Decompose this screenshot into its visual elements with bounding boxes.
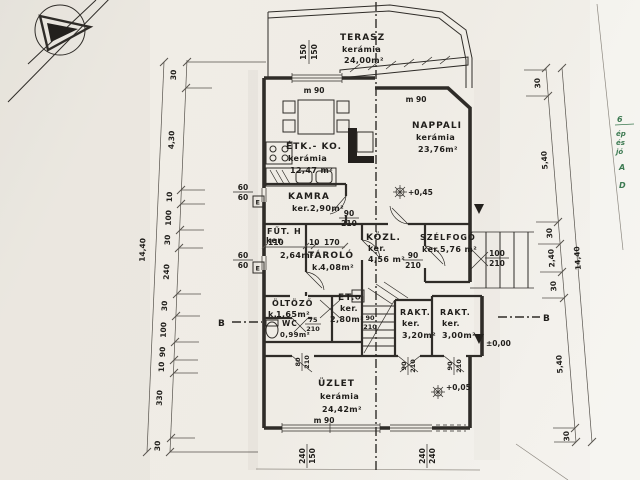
svg-text:6: 6 xyxy=(617,115,623,124)
svg-text:2,80m²: 2,80m² xyxy=(330,315,364,324)
scan-artifacts xyxy=(0,0,640,480)
svg-text:kerámia: kerámia xyxy=(342,45,381,54)
dim-left-2: 10 xyxy=(165,192,174,203)
svg-text:4,56 m²: 4,56 m² xyxy=(368,255,405,264)
svg-text:90: 90 xyxy=(446,361,454,371)
svg-text:210: 210 xyxy=(409,359,417,373)
svg-text:210: 210 xyxy=(306,325,320,333)
dim-oltozo-door: 80 210 xyxy=(294,353,311,371)
svg-text:24,42m²: 24,42m² xyxy=(322,405,362,414)
svg-text:RAKT.: RAKT. xyxy=(440,308,471,317)
room-label-etk-ko: ÉTK.- KO. kerámia 12,47 m² xyxy=(286,140,342,175)
svg-text:150: 150 xyxy=(299,44,308,60)
svg-text:FŰT. H: FŰT. H xyxy=(267,226,302,236)
svg-text:ET.: ET. xyxy=(338,293,355,303)
dim-left-3: 100 xyxy=(164,210,174,226)
room-label-rakt1: RAKT. ker. 3,20m² xyxy=(400,308,436,340)
svg-text:60: 60 xyxy=(238,261,248,270)
dim-left-9: 10 xyxy=(157,362,166,373)
svg-text:60: 60 xyxy=(238,251,248,260)
svg-text:ker.: ker. xyxy=(292,204,310,213)
dim-tarolo-width: 170 xyxy=(324,238,340,247)
svg-text:ÉTK.- KO.: ÉTK.- KO. xyxy=(286,140,342,152)
svg-text:240: 240 xyxy=(298,448,307,464)
room-label-uzlet: ÜZLET kerámia 24,42m² xyxy=(318,378,362,414)
dim-kozl-door: 90 210 xyxy=(403,251,423,270)
boiler-label: O xyxy=(355,294,361,302)
dim-left-6: 30 xyxy=(160,301,169,312)
svg-text:ÖLTÖZŐ: ÖLTÖZŐ xyxy=(272,298,313,308)
svg-text:jó: jó xyxy=(615,148,623,156)
svg-text:80: 80 xyxy=(294,357,302,367)
dim-left-5: 240 xyxy=(162,264,172,280)
svg-text:ép: ép xyxy=(616,130,626,138)
dim-szelfogo-door: 100 210 xyxy=(485,249,509,268)
svg-text:kerámia: kerámia xyxy=(416,133,455,142)
svg-text:2,90m²: 2,90m² xyxy=(310,204,344,213)
m90-bottom: m 90 xyxy=(314,416,335,425)
elevation-nappali: +0,45 xyxy=(408,188,433,197)
svg-text:A: A xyxy=(618,163,625,172)
svg-text:ker.: ker. xyxy=(368,244,386,253)
svg-text:kerámia: kerámia xyxy=(288,154,327,163)
floor-plan-drawing: 30 4,30 10 100 30 240 30 100 90 10 330 3… xyxy=(0,0,640,480)
room-label-tarolo: TÁROLÓ k. 4,08m² xyxy=(308,249,354,272)
svg-text:90: 90 xyxy=(408,251,418,260)
room-label-nappali: NAPPALI kerámia 23,76m² xyxy=(412,121,462,154)
electric-box-label-1: E xyxy=(256,199,260,207)
svg-text:4,08m²: 4,08m² xyxy=(320,263,354,272)
dim-right-2: 30 xyxy=(545,228,555,239)
dim-left-10: 330 xyxy=(155,390,165,406)
svg-text:23,76m²: 23,76m² xyxy=(418,145,458,154)
dim-bottom-door: 240 240 xyxy=(418,444,437,468)
svg-text:kerámia: kerámia xyxy=(320,392,359,401)
svg-text:60: 60 xyxy=(238,183,248,192)
svg-text:5,76 m²: 5,76 m² xyxy=(440,245,477,254)
dim-left-0: 30 xyxy=(169,70,178,81)
svg-text:ÜZLET: ÜZLET xyxy=(318,378,355,389)
dim-right-total: 14,40 xyxy=(572,246,583,270)
svg-text:ker.: ker. xyxy=(442,319,460,328)
elevation-rakt: ±0,00 xyxy=(486,339,511,348)
svg-text:210: 210 xyxy=(405,261,421,270)
section-marker-left: B xyxy=(218,319,226,329)
svg-text:NAPPALI: NAPPALI xyxy=(412,121,462,131)
dim-wall-10: 10 xyxy=(309,238,319,247)
svg-text:ker.: ker. xyxy=(340,304,358,313)
dim-fut-width: 110 xyxy=(268,238,284,247)
svg-text:240: 240 xyxy=(418,448,427,464)
wc-toilet xyxy=(266,320,278,338)
svg-text:60: 60 xyxy=(238,193,248,202)
dim-left-4: 30 xyxy=(163,235,172,246)
dining-table-and-chairs xyxy=(283,100,349,134)
room-label-rakt2: RAKT. ker. 3,00m² xyxy=(440,308,476,340)
dim-left-7: 100 xyxy=(159,322,169,338)
svg-text:210: 210 xyxy=(455,359,463,373)
svg-text:75: 75 xyxy=(308,316,318,324)
svg-text:24,00m²: 24,00m² xyxy=(344,56,384,65)
elevation-uzlet: +0,05 xyxy=(446,383,471,392)
dim-right-0: 30 xyxy=(533,78,543,89)
dim-right-3: 2,40 xyxy=(546,249,556,268)
m90-top: m 90 xyxy=(304,86,325,95)
m90-terrace: m 90 xyxy=(406,95,427,104)
svg-text:SZÉLFOGÓ: SZÉLFOGÓ xyxy=(420,231,476,242)
room-label-kozl: KÖZL. ker. 4,56 m² xyxy=(366,232,405,264)
svg-text:210: 210 xyxy=(489,259,505,268)
svg-text:100: 100 xyxy=(489,249,505,258)
electric-box-label-2: E xyxy=(256,265,260,273)
svg-text:90: 90 xyxy=(365,314,375,322)
svg-text:3,00m²: 3,00m² xyxy=(442,331,476,340)
dim-right-6: 30 xyxy=(562,431,572,442)
svg-text:és: és xyxy=(616,139,625,147)
svg-text:ker.: ker. xyxy=(422,245,440,254)
svg-text:1,65m²: 1,65m² xyxy=(276,310,310,319)
fireplace-chimney xyxy=(348,128,374,163)
dim-right-1: 5,40 xyxy=(539,151,549,170)
svg-text:12,47 m²: 12,47 m² xyxy=(290,166,333,175)
dim-left-1: 4,30 xyxy=(167,131,177,150)
svg-text:90: 90 xyxy=(400,361,408,371)
right-dimension-chain: 30 5,40 30 2,40 30 5,40 30 14,40 xyxy=(524,64,596,446)
dim-top-window: 150 150 xyxy=(299,40,319,64)
svg-text:210: 210 xyxy=(341,219,357,228)
svg-text:3,20m²: 3,20m² xyxy=(402,331,436,340)
svg-text:KAMRA: KAMRA xyxy=(288,192,330,202)
dim-right-5: 5,40 xyxy=(554,355,564,374)
svg-text:210: 210 xyxy=(363,323,377,331)
dim-left-total: 14,40 xyxy=(138,238,148,262)
svg-text:WC: WC xyxy=(282,319,298,328)
section-marker-right: B xyxy=(543,314,551,324)
svg-text:KÖZL.: KÖZL. xyxy=(366,232,401,243)
svg-text:D: D xyxy=(619,181,626,190)
svg-text:ker.: ker. xyxy=(402,319,420,328)
room-label-oltozo: ÖLTÖZŐ k. 1,65m² xyxy=(268,298,313,319)
svg-text:240: 240 xyxy=(428,448,437,464)
svg-text:TERASZ: TERASZ xyxy=(340,33,385,43)
dim-bottom-window: 240 150 xyxy=(298,444,317,468)
svg-text:TÁROLÓ: TÁROLÓ xyxy=(308,249,354,261)
svg-text:90: 90 xyxy=(344,209,354,218)
dim-right-4: 30 xyxy=(549,281,559,292)
room-label-kamra: KAMRA ker. 2,90m² xyxy=(288,192,344,213)
room-label-terasz: TERASZ kerámia 24,00m² xyxy=(340,33,385,65)
svg-text:RAKT.: RAKT. xyxy=(400,308,431,317)
dim-left-8: 90 xyxy=(158,347,167,358)
scanned-floor-plan-page: 30 4,30 10 100 30 240 30 100 90 10 330 3… xyxy=(0,0,640,480)
svg-text:210: 210 xyxy=(303,355,311,369)
dim-left-11: 30 xyxy=(153,441,162,452)
svg-text:150: 150 xyxy=(308,448,317,464)
svg-text:150: 150 xyxy=(310,44,319,60)
